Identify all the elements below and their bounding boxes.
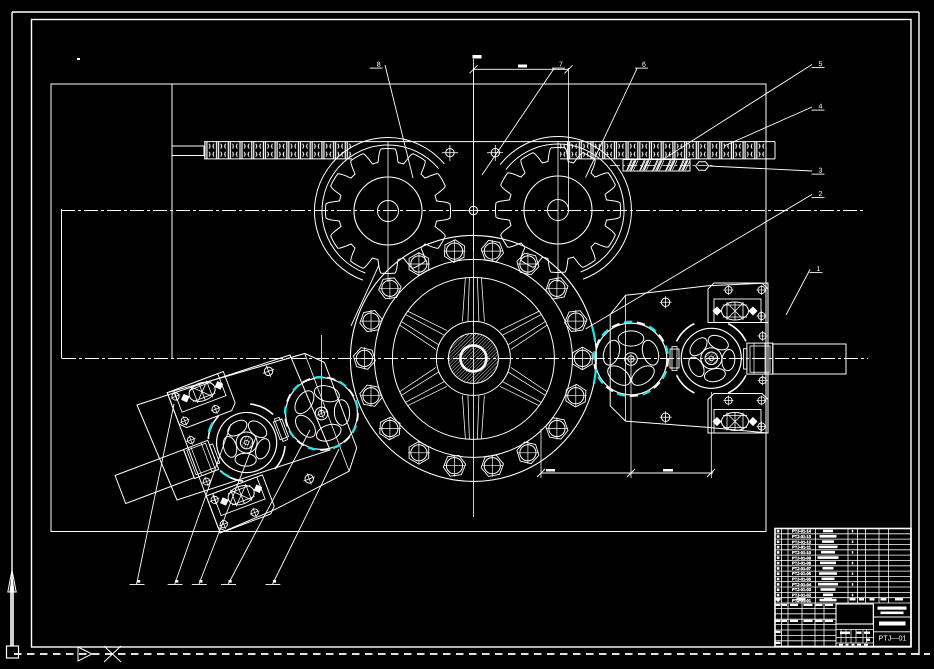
svg-text:PTJ-01-14: PTJ-01-14 (792, 529, 812, 534)
svg-text:PTJ-01-12: PTJ-01-12 (792, 539, 812, 544)
svg-text:PTJ-01-10: PTJ-01-10 (792, 550, 812, 555)
svg-text:PTJ-01-06: PTJ-01-06 (792, 571, 812, 576)
svg-text:4: 4 (819, 104, 823, 111)
svg-text:1: 1 (817, 266, 821, 273)
svg-text:2: 2 (819, 191, 823, 198)
svg-text:PTJ-01-08: PTJ-01-08 (792, 561, 812, 566)
svg-text:PTJ-01-13: PTJ-01-13 (792, 534, 812, 539)
svg-text:PTJ—01: PTJ—01 (879, 634, 907, 643)
svg-text:PTJ-01-03: PTJ-01-03 (792, 587, 812, 592)
svg-text:PTJ-01-09: PTJ-01-09 (792, 555, 812, 560)
svg-text:PTJ-01-02: PTJ-01-02 (792, 593, 812, 598)
svg-text:PTJ-01-05: PTJ-01-05 (792, 577, 812, 582)
svg-text:PTJ-01-07: PTJ-01-07 (792, 566, 812, 571)
svg-text:8: 8 (377, 62, 381, 69)
svg-text:PTJ-01-04: PTJ-01-04 (792, 582, 812, 587)
svg-text:7: 7 (559, 62, 563, 69)
svg-text:5: 5 (819, 61, 823, 68)
svg-text:6: 6 (642, 62, 646, 69)
svg-text:PTJ-01-11: PTJ-01-11 (792, 545, 811, 550)
svg-text:3: 3 (819, 168, 823, 175)
